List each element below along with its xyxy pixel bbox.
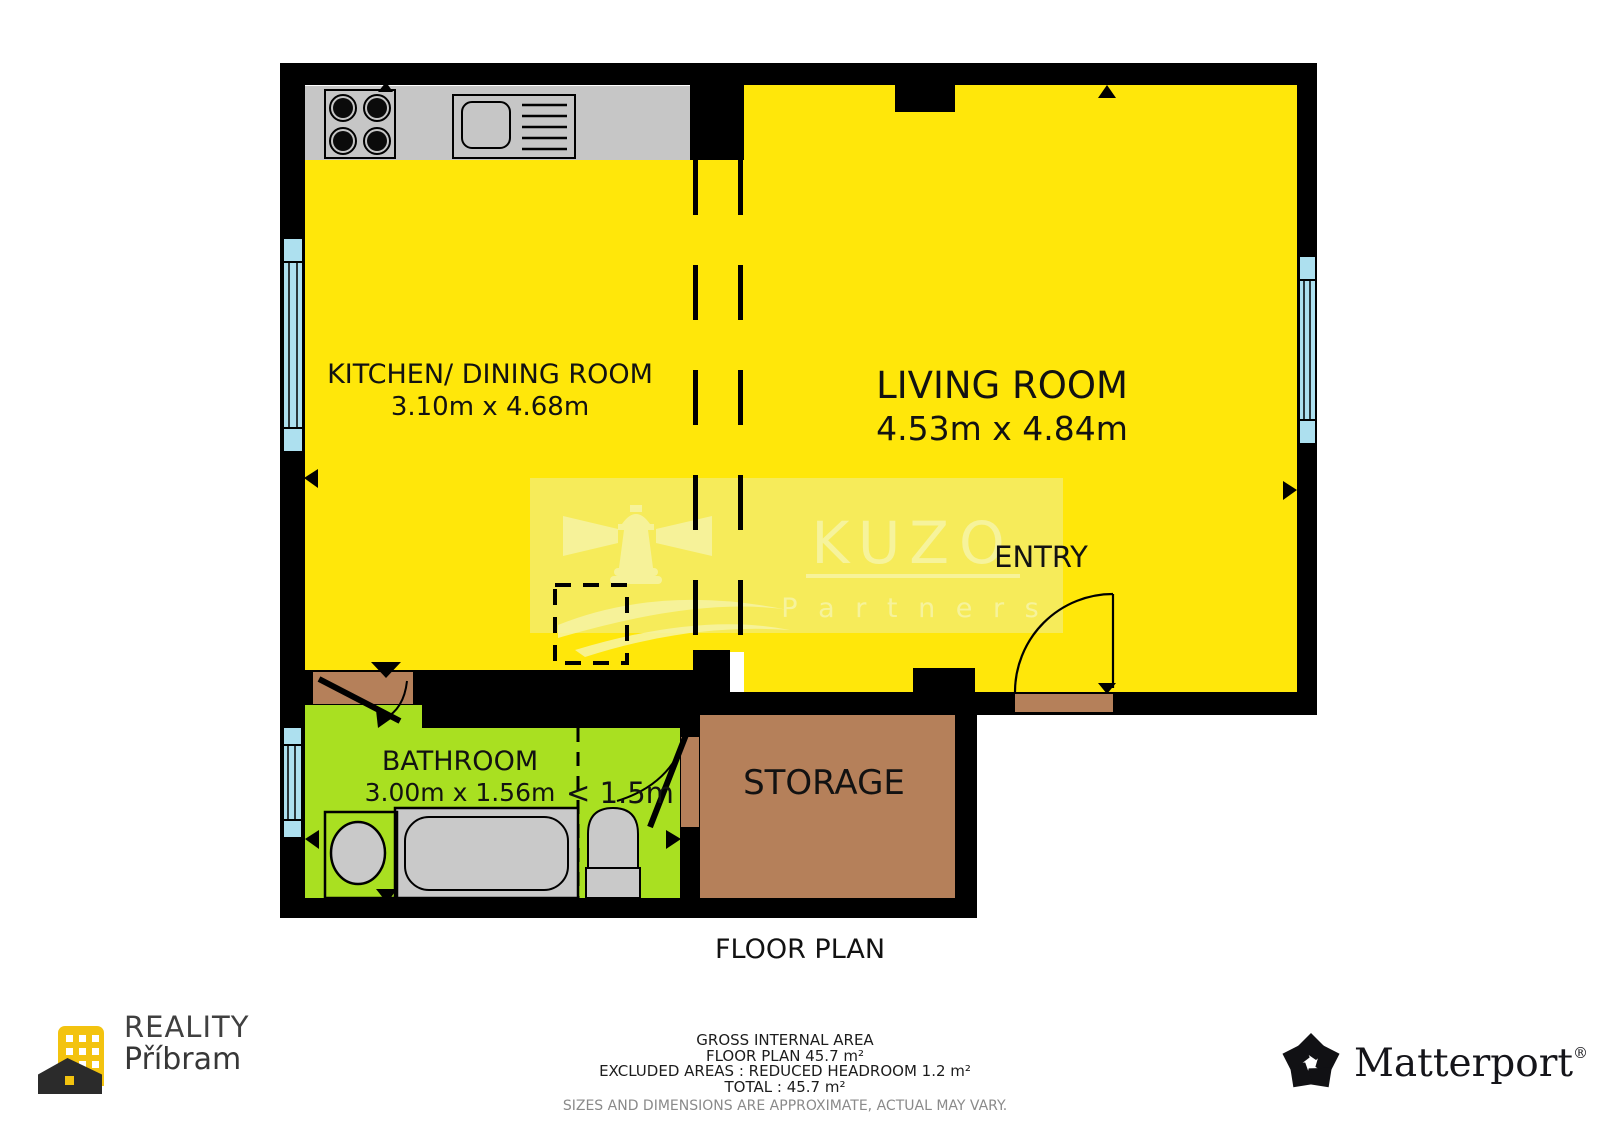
area-summary: GROSS INTERNAL AREA FLOOR PLAN 45.7 m² E… [485, 1033, 1085, 1114]
agency-name-line1: REALITY [124, 1010, 249, 1044]
toilet-tank-icon [586, 868, 640, 898]
wall-living-bottom [660, 692, 1317, 715]
wall-kitchen-bathroom-b [422, 670, 700, 728]
matterport-logo: Matterport® [1278, 1030, 1588, 1096]
wall-top-notch [895, 85, 955, 112]
bathroom-window [283, 727, 302, 838]
kuzo-watermark: KUZO P a r t n e r s [530, 478, 1063, 657]
bathroom-label: BATHROOM [382, 746, 538, 777]
living-room-dimensions: 4.53m x 4.84m [876, 409, 1128, 448]
living-room-label: LIVING ROOM [876, 364, 1128, 407]
storage-label: STORAGE [743, 763, 905, 803]
bathtub-icon [395, 808, 578, 898]
watermark-kuzo-text: KUZO [811, 509, 1014, 577]
wall-divider-foot [693, 650, 730, 694]
kitchen-label: KITCHEN/ DINING ROOM [327, 359, 653, 390]
wall-counter-end-block [690, 63, 744, 160]
bathroom-dimensions: 3.00m x 1.56m [365, 778, 556, 807]
disclaimer-line: SIZES AND DIMENSIONS ARE APPROXIMATE, AC… [485, 1098, 1085, 1114]
matterport-pinwheel-icon [1278, 1030, 1344, 1096]
entry-door-threshold [1015, 694, 1113, 712]
wall-lower-bottom [280, 898, 977, 918]
wall-bottom-pillar [913, 668, 975, 692]
reduced-headroom-label: < 1.5m [566, 776, 674, 810]
storage-door-threshold [681, 737, 699, 827]
total-area-line: TOTAL : 45.7 m² [485, 1080, 1085, 1096]
watermark-underline [806, 574, 1020, 578]
watermark-partners-text: P a r t n e r s [781, 593, 1044, 624]
floor-plan-drawing: KUZO P a r t n e r s [0, 0, 1600, 1131]
house-window-icon [65, 1076, 74, 1085]
washbasin-icon [331, 822, 385, 884]
floor-plan-page: KUZO P a r t n e r s [0, 0, 1600, 1131]
matterport-name: Matterport® [1354, 1041, 1588, 1086]
registered-mark: ® [1573, 1044, 1588, 1062]
wall-storage-right [955, 692, 977, 918]
toilet-bowl-icon [588, 808, 638, 868]
stove-icon [325, 90, 395, 158]
kitchen-dimensions: 3.10m x 4.68m [391, 392, 589, 422]
living-room-window [1299, 256, 1316, 444]
entry-label: ENTRY [994, 540, 1088, 574]
agency-logo: REALITY Příbram [38, 1004, 268, 1096]
wall-top [280, 63, 1317, 85]
building-windows [66, 1035, 73, 1042]
sink-icon [453, 95, 575, 158]
kitchen-window [283, 238, 303, 452]
agency-name-line2: Příbram [124, 1042, 241, 1077]
floor-plan-caption: FLOOR PLAN [715, 934, 885, 965]
